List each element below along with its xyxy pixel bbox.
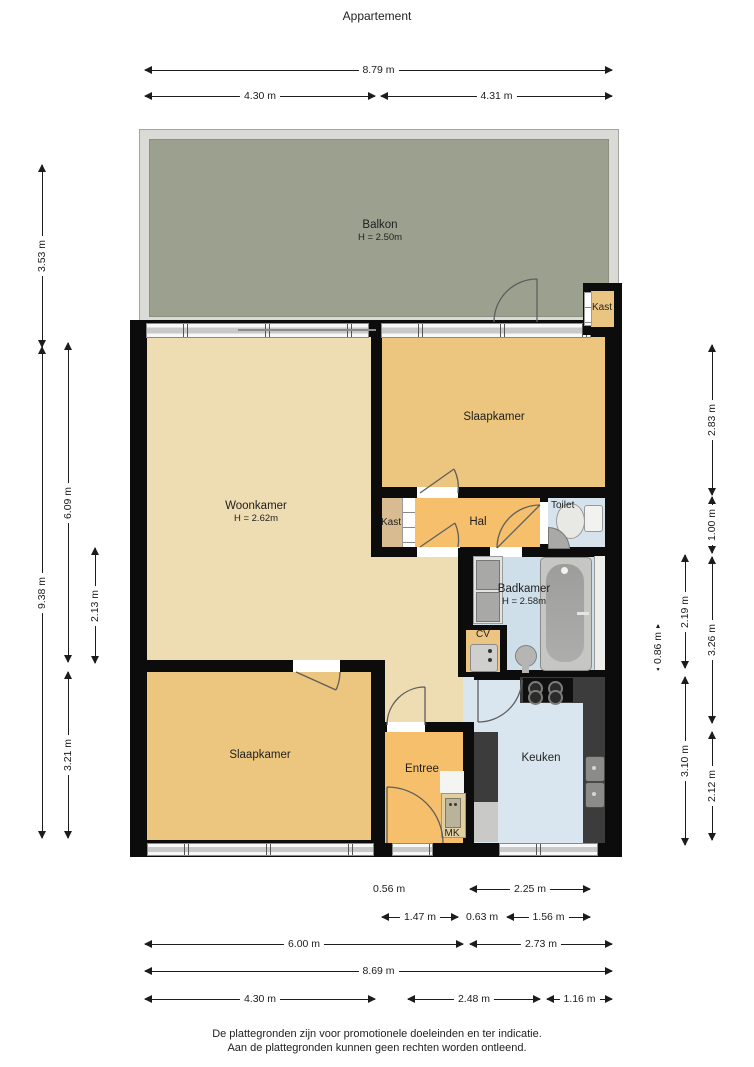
window-slaapkamer-bottom [148,844,373,855]
radiator-strip [594,556,605,670]
room-height: H = 2.62m [186,513,326,524]
page-title: Appartement [0,9,754,23]
room-name: Kast [578,302,626,314]
kitchen-counter-left [474,732,498,802]
window-slaapkamer-balkon [382,324,590,337]
bathroom-sink-stem-icon [522,664,529,673]
room-label-hal: Hal [438,515,518,529]
entree-door-gap [387,722,425,732]
dim-bottom-063: 0.63 m [466,911,498,923]
room-name: Keuken [471,751,611,765]
dim-right-326: 3.26 m [712,557,713,723]
room-name: CV [466,629,500,641]
room-name: Slaapkamer [424,410,564,424]
dim-bottom-116: 1.16 m [547,999,612,1000]
room-label-kast-hal: Kast [366,517,416,529]
room-name: Slaapkamer [190,748,330,762]
floor-plan-page: Appartement [0,0,754,1067]
dim-bottom-869: 8.69 m [145,971,612,972]
kitchen-faucet2-icon [592,792,596,796]
stove-burner-icon [548,690,563,705]
hal-woonkamer-door-gap [417,547,460,557]
dim-top-430: 4.30 m [145,96,375,97]
room-name: Kast [366,517,416,529]
kitchen-faucet1-icon [592,766,596,770]
dim-left-938: 9.38 m [42,347,43,838]
dim-top-879: 8.79 m [145,70,612,71]
room-label-slaapkamer-bottom: Slaapkamer [190,748,330,762]
dim-right-283: 2.83 m [712,345,713,495]
room-label-cv: CV [466,629,500,641]
room-name: Entree [382,762,462,776]
room-label-woonkamer: Woonkamer H = 2.62m [186,499,326,524]
dim-bottom-248: 2.48 m [408,999,540,1000]
disclaimer: De plattegronden zijn voor promotionele … [0,1027,754,1055]
slaapkamer-top-door-gap [417,487,458,498]
mk-meter-dot-icon [449,803,452,806]
room-label-mk: MK [434,828,470,840]
room-name: Toilet [551,500,601,512]
cv-boiler-knob1-icon [488,649,492,653]
woonkamer-floor-extension [371,557,465,727]
bathtub-faucet-icon [561,567,568,574]
window-keuken [500,844,597,855]
wall-slaapkamer-top-bottom [380,487,605,498]
front-door-band [393,844,432,855]
cv-boiler-knob2-icon [488,658,492,662]
dim-bottom-430: 4.30 m [145,999,375,1000]
dim-right-219: 2.19 m [685,555,686,668]
dim-left-609: 6.09 m [68,343,69,662]
room-label-badkamer: Badkamer H = 2.58m [454,582,594,607]
mk-meter-icon [445,798,461,828]
dim-right-212: 2.12 m [712,732,713,840]
toilet-door-gap [540,502,548,544]
room-label-balkon: Balkon H = 2.50m [310,218,450,243]
stove-burner-icon [528,690,543,705]
cv-boiler-icon [470,644,498,672]
disclaimer-line1: De plattegronden zijn voor promotionele … [0,1027,754,1041]
room-label-kast-balkon: Kast [578,302,626,314]
dim-left-353: 3.53 m [42,165,43,347]
room-name: MK [434,828,470,840]
room-name: Balkon [310,218,450,232]
dim-bottom-273: 2.73 m [470,944,612,945]
dim-right-086: 0.86 m [658,625,659,670]
kitchen-cabinet-left [474,802,498,842]
dim-top-431: 4.31 m [381,96,612,97]
dim-right-310: 3.10 m [685,677,686,845]
dim-bottom-225: 2.25 m [470,889,590,890]
mk-meter-dot-icon [454,803,457,806]
room-name: Woonkamer [186,499,326,513]
sliding-door-line [238,329,376,331]
dim-bottom-156: 1.56 m [507,917,590,918]
room-label-entree: Entree [382,762,462,776]
room-label-toilet: Toilet [551,500,601,512]
bathtub-handle-icon [577,612,589,615]
room-name: Hal [438,515,518,529]
room-height: H = 2.58m [454,596,594,607]
dim-left-321: 3.21 m [68,672,69,838]
dim-bottom-056: 0.56 m [373,883,405,895]
disclaimer-line2: Aan de plattegronden kunnen geen rechten… [0,1041,754,1055]
dim-left-213: 2.13 m [95,548,96,663]
room-label-keuken: Keuken [471,751,611,765]
room-name: Badkamer [454,582,594,596]
wall-slaapkamer-entree [371,660,385,855]
room-label-slaapkamer-top: Slaapkamer [424,410,564,424]
room-height: H = 2.50m [310,232,450,243]
slaapkamer-bottom-door-gap [293,660,340,672]
dim-bottom-147: 1.47 m [382,917,458,918]
dim-right-100: 1.00 m [712,497,713,553]
dim-bottom-600: 6.00 m [145,944,463,945]
